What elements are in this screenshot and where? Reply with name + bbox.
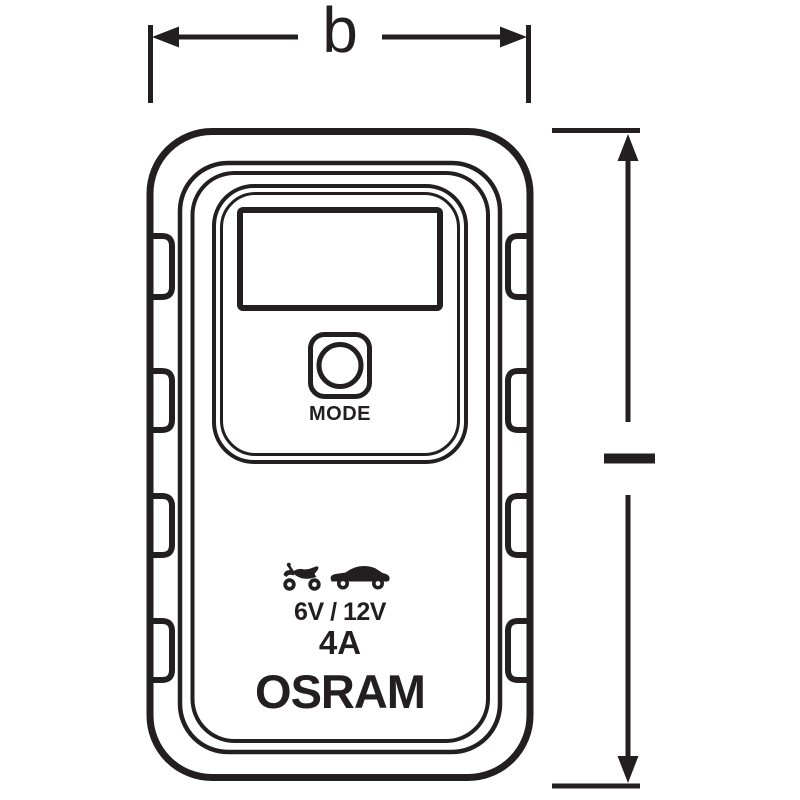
motorcycle-icon (283, 563, 320, 591)
display-screen (240, 210, 440, 308)
device-inner-outline-1 (180, 163, 500, 752)
width-dim-arrow-right-icon (500, 27, 527, 48)
height-dim-arrow-up-icon (618, 134, 639, 161)
current-label: 4A (280, 626, 400, 659)
mode-button-label: MODE (280, 404, 400, 424)
height-dim-arrow-down-icon (618, 756, 639, 783)
car-icon (331, 566, 390, 590)
dimension-drawing-page: b MODE 6V / 12V 4A OSRAM (0, 0, 800, 800)
brand-logo-text: OSRAM (240, 668, 440, 715)
width-dim-arrow-left-icon (152, 27, 179, 48)
height-dimension (552, 131, 655, 787)
mode-button-circle-icon (319, 345, 361, 387)
voltage-label: 6V / 12V (262, 600, 418, 625)
vehicle-icons (283, 563, 389, 591)
width-dimension-label: b (260, 0, 420, 62)
